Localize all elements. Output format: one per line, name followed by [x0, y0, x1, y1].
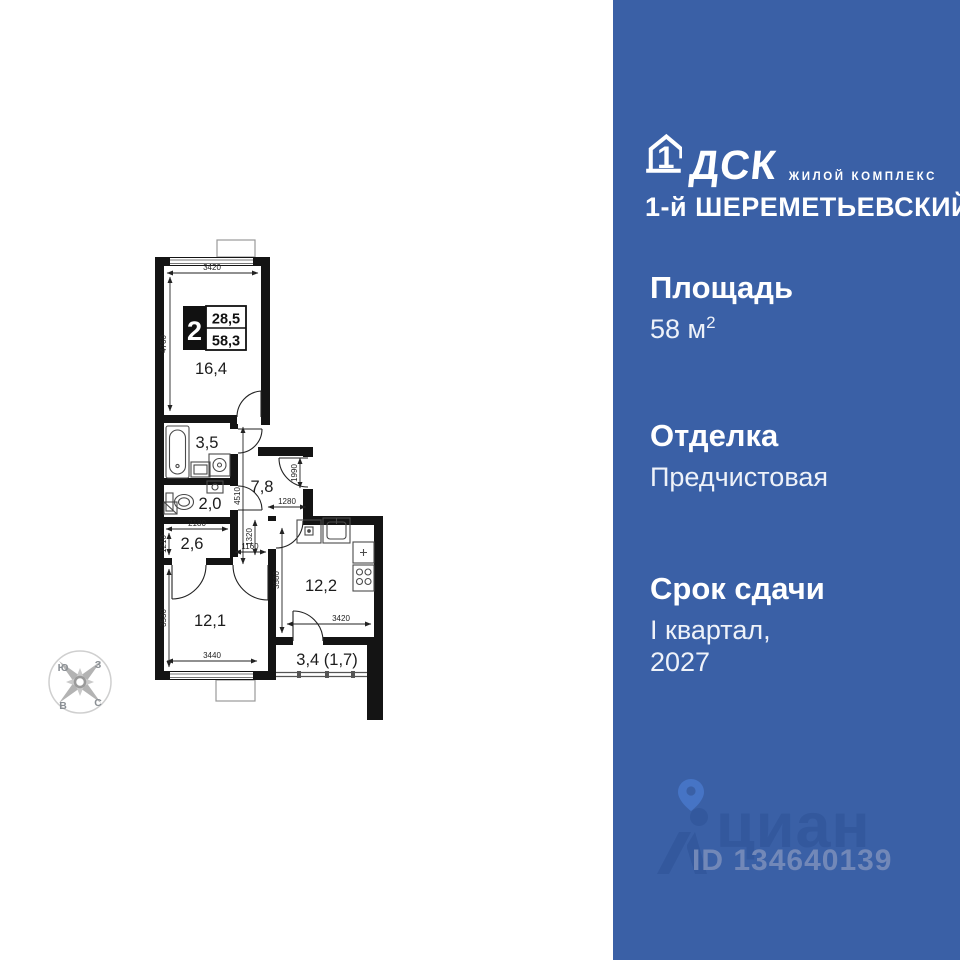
room-bedroom-label: 12,1	[194, 612, 226, 630]
dim-bedroom-h: 3530	[159, 609, 168, 627]
finishing-value: Предчистовая	[650, 461, 828, 494]
section-deadline: Срок сдачи I квартал, 2027	[650, 573, 825, 679]
room-living-label: 16,4	[195, 360, 227, 378]
wc-fixtures	[164, 493, 194, 514]
listing-card: 3420 4760 4510 1990 1280 2180 1210 1320 …	[0, 0, 960, 960]
dim-entry: 1990	[290, 464, 299, 482]
room-kitchen-label: 12,2	[305, 577, 337, 595]
dim-pass-w: 1160	[241, 542, 259, 551]
finishing-title: Отделка	[650, 420, 828, 453]
developer-logo: 1 ДСК ЖИЛОЙ КОМПЛЕКС 1-й ШЕРЕМЕТЬЕВСКИЙ	[645, 116, 937, 223]
area-value: 58 м2	[650, 313, 793, 346]
dim-corridor-h: 1210	[159, 535, 168, 553]
deadline-title: Срок сдачи	[650, 573, 825, 606]
total-area-value: 58,3	[212, 334, 240, 350]
compass-sw-label: В	[59, 700, 67, 712]
dim-living-h: 4760	[159, 335, 168, 353]
room-hall-label: 7,8	[251, 478, 274, 496]
info-panel: 1 ДСК ЖИЛОЙ КОМПЛЕКС 1-й ШЕРЕМЕТЬЕВСКИЙ …	[613, 0, 960, 960]
room-bath-label: 3,5	[196, 434, 219, 452]
complex-name: 1-й ШЕРЕМЕТЬЕВСКИЙ	[645, 192, 937, 223]
house-logo-icon: 1	[645, 116, 682, 188]
dim-kitchen-w: 3420	[332, 614, 350, 623]
living-area-value: 28,5	[212, 312, 240, 328]
listing-id: ID 134640139	[692, 844, 893, 878]
compass-icon: Ю З В С	[49, 651, 111, 713]
dim-top: 3420	[203, 263, 221, 272]
dim-hall-w: 1280	[278, 497, 296, 506]
compass-nw-label: Ю	[58, 662, 69, 674]
rooms-count: 2	[187, 316, 202, 346]
area-sup: 2	[706, 313, 715, 332]
compass-se-label: С	[94, 697, 102, 709]
deadline-value: I квартал, 2027	[650, 614, 825, 680]
deadline-line2: 2027	[650, 646, 825, 679]
section-finishing: Отделка Предчистовая	[650, 420, 828, 493]
section-area: Площадь 58 м2	[650, 272, 793, 345]
logo-row: 1 ДСК ЖИЛОЙ КОМПЛЕКС	[645, 116, 937, 188]
room-wc-label: 2,0	[199, 495, 222, 513]
room-balcony-label: 3,4 (1,7)	[296, 651, 357, 669]
dim-kitchen-h: 3580	[272, 571, 281, 589]
dim-bedroom-w: 3440	[203, 651, 221, 660]
area-title: Площадь	[650, 272, 793, 305]
logo-one: 1	[657, 140, 674, 175]
logo-dsk-text: ДСК	[688, 145, 779, 186]
plan-info-box: 2 28,5 58,3	[183, 306, 246, 350]
dim-hall-h: 4510	[233, 487, 242, 505]
room-corridor-label: 2,6	[181, 535, 204, 553]
deadline-line1: I квартал,	[650, 614, 825, 647]
door-swings	[172, 391, 323, 641]
area-number: 58 м	[650, 314, 706, 344]
logo-tagline: ЖИЛОЙ КОМПЛЕКС	[789, 171, 937, 183]
dim-corridor-w: 2180	[188, 519, 206, 528]
compass-ne-label: З	[95, 659, 102, 671]
floor-plan: 3420 4760 4510 1990 1280 2180 1210 1320 …	[0, 0, 613, 960]
